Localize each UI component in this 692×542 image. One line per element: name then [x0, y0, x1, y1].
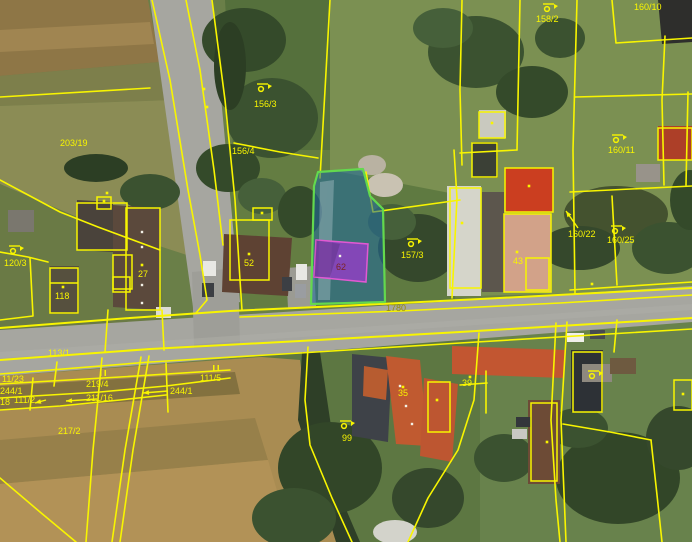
building-roof — [610, 358, 636, 374]
building-roof — [636, 164, 660, 182]
vehicle — [202, 283, 214, 297]
parcel-label: 11/23 — [2, 374, 24, 384]
vertex-dot — [203, 88, 206, 91]
building-roof — [452, 346, 566, 378]
vehicle — [295, 284, 306, 298]
vertex-dot — [461, 222, 464, 225]
parcel-label: 35 — [398, 388, 408, 398]
parcel-label: 160/22 — [568, 229, 596, 239]
vehicle — [567, 333, 584, 342]
vehicle — [203, 261, 216, 276]
building-roof — [505, 168, 553, 212]
building-roof — [420, 378, 458, 462]
parcel-label: 52 — [244, 258, 254, 268]
parcel-label: 160/11 — [608, 145, 635, 155]
parcel-label: 244/1 — [170, 386, 193, 396]
roof-window-dot — [405, 405, 407, 407]
parcel-label: 43 — [513, 256, 523, 266]
vertex-dot — [103, 200, 106, 203]
parcel-label: 217/2 — [58, 426, 81, 436]
building-roof — [113, 205, 160, 310]
building-roof — [363, 366, 388, 400]
tree-canopy — [367, 173, 403, 197]
cadastral-orthophoto-map[interactable]: 203/19156/3156/4158/2160/10160/11160/221… — [0, 0, 692, 542]
parcel-label: 160/25 — [607, 235, 635, 245]
vertex-dot — [528, 185, 531, 188]
building-roof — [472, 142, 498, 178]
landuse-parallel-icon — [105, 370, 107, 376]
parcel-label: 113/1 — [48, 348, 70, 358]
roof-window-dot — [339, 255, 341, 257]
parcel-label: 18 — [0, 397, 10, 407]
roof-window-dot — [141, 284, 143, 286]
vertex-dot — [106, 192, 109, 195]
tree-canopy — [474, 434, 534, 482]
vehicle — [512, 429, 527, 439]
parcel-label: 211/16 — [86, 393, 113, 403]
building-roof — [447, 186, 481, 296]
vertex-dot — [491, 122, 494, 125]
roof-window-dot — [399, 385, 401, 387]
roof-window-dot — [411, 423, 413, 425]
parcel-label: 160/10 — [634, 2, 662, 12]
parcel-label: 1780 — [386, 303, 406, 313]
parcel-label: 39 — [462, 378, 472, 388]
vehicle — [282, 277, 292, 291]
vehicle — [516, 417, 531, 427]
map-viewport[interactable]: 203/19156/3156/4158/2160/10160/11160/221… — [0, 0, 692, 542]
tree-canopy — [64, 154, 128, 182]
vertex-dot — [62, 286, 65, 289]
roof-window-dot — [141, 302, 143, 304]
vertex-dot — [682, 393, 685, 396]
parcel-label: 158/2 — [536, 14, 559, 24]
building-roof — [582, 364, 612, 382]
roof-window-dot — [141, 231, 143, 233]
parcel-label: 156/4 — [232, 146, 255, 156]
building-roof — [8, 210, 34, 232]
vertex-dot — [546, 441, 549, 444]
parcel-label: 111/5 — [200, 373, 221, 383]
parcel-label: 156/3 — [254, 99, 277, 109]
tree-canopy — [413, 8, 473, 48]
building-roof — [528, 400, 560, 484]
roof-window-dot — [141, 246, 143, 248]
vertex-dot — [516, 251, 519, 254]
vertex-dot — [261, 212, 264, 215]
landuse-parallel-icon — [100, 370, 102, 376]
building-roof — [222, 234, 292, 296]
parcel-label: 157/3 — [401, 250, 424, 260]
parcel-label: 203/19 — [60, 138, 88, 148]
building-roof — [482, 192, 504, 292]
parcel-label: 27 — [138, 269, 148, 279]
parcel-label: 62 — [336, 262, 346, 272]
tree-canopy — [120, 174, 180, 210]
parcel-label: 219/4 — [86, 379, 109, 389]
tree-canopy — [535, 18, 585, 58]
vertex-dot — [436, 399, 439, 402]
parcel-label: 118 — [55, 291, 69, 301]
vertex-dot — [591, 283, 594, 286]
building-roof — [658, 0, 692, 44]
parcel-label: 111/2 — [14, 395, 35, 405]
parcel-label: 99 — [342, 433, 352, 443]
parcel-label: 120/3 — [4, 258, 27, 268]
vertex-dot — [141, 264, 144, 267]
landuse-parallel-icon — [218, 365, 220, 371]
tree-canopy — [496, 66, 568, 118]
building-roof — [50, 266, 79, 314]
vehicle — [296, 264, 307, 280]
landuse-parallel-icon — [213, 365, 215, 371]
vertex-dot — [206, 106, 209, 109]
vertex-dot — [248, 253, 251, 256]
tree-canopy — [214, 22, 246, 110]
building-roof — [504, 214, 551, 292]
